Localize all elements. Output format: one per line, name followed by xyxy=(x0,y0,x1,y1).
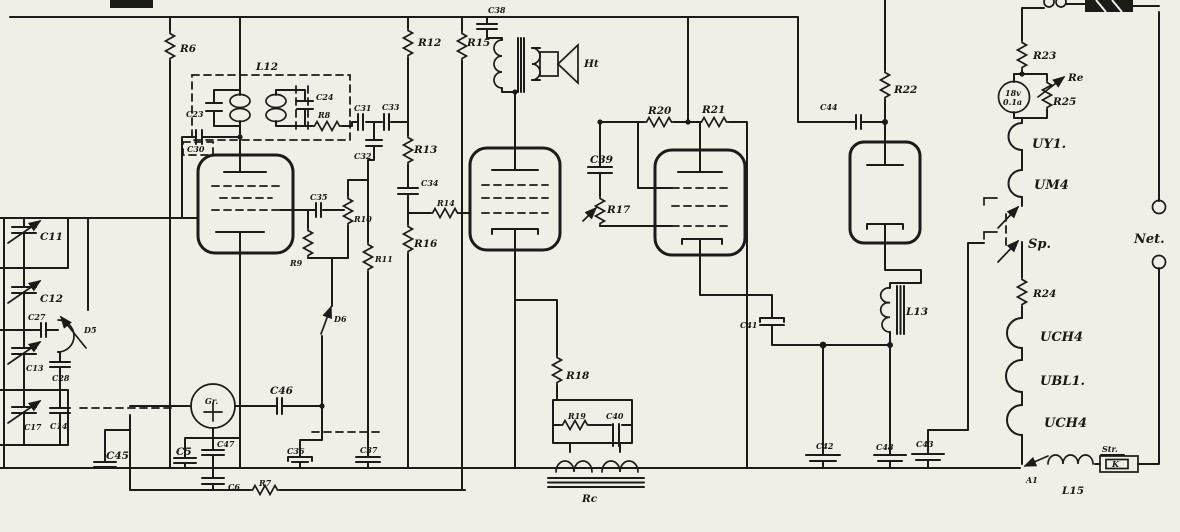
cut-off-element-top-left xyxy=(110,0,153,8)
label-c39: C39 xyxy=(590,154,614,166)
resistor-r21 xyxy=(699,118,729,127)
label-r6: R6 xyxy=(179,43,197,55)
mains-terminal-bottom xyxy=(1153,256,1166,269)
resistor-r16 xyxy=(404,224,413,254)
rc-transformer-winding-2 xyxy=(602,461,638,472)
tube-1-electrodes xyxy=(216,172,266,232)
label-r22: R22 xyxy=(893,84,917,96)
junction-dot xyxy=(237,134,242,139)
label-c33: C33 xyxy=(382,102,400,112)
mains-terminal-top xyxy=(1153,201,1166,214)
sp-switch-arrow-2 xyxy=(998,241,1018,262)
label-gr: Gr. xyxy=(205,396,218,406)
resistor-r20 xyxy=(644,118,674,127)
r17-wiper-arrow xyxy=(583,208,596,221)
label-tube-uch4-b: UCH4 xyxy=(1044,416,1087,431)
label-c31: C31 xyxy=(354,103,372,113)
l12-coil2-loop xyxy=(266,109,286,122)
label-r7: R7 xyxy=(258,478,272,488)
label-fuse-k: K xyxy=(1111,459,1120,469)
label-tube-uy1: UY1. xyxy=(1032,137,1066,152)
resistor-r6 xyxy=(166,31,175,61)
label-c47: C47 xyxy=(217,439,235,449)
l12-coil1-loop xyxy=(230,109,250,122)
label-r18: R18 xyxy=(565,370,590,382)
l12-coil2-loop xyxy=(266,95,286,108)
resistor-r14 xyxy=(430,209,460,218)
switch-d6-arrow xyxy=(321,307,331,334)
heater-chain xyxy=(1006,123,1022,435)
choke-l13 xyxy=(881,288,890,332)
label-c45: C45 xyxy=(106,450,129,462)
label-net: Net. xyxy=(1133,232,1165,247)
label-r24: R24 xyxy=(1032,288,1056,300)
tubes xyxy=(198,142,920,255)
heater-uch4-b xyxy=(1007,405,1022,435)
label-c24: C24 xyxy=(316,92,334,102)
resistor-r22 xyxy=(881,70,890,100)
label-r13: R13 xyxy=(413,144,437,156)
schematic-canvas: R6 L12 C23 C24 R8 C30 C31 C33 C32 R12 R1… xyxy=(0,0,1180,532)
resistor-r24 xyxy=(1018,277,1027,307)
resistor-r8 xyxy=(312,122,342,131)
label-c5: C5 xyxy=(176,446,192,458)
label-r21: R21 xyxy=(701,104,725,116)
label-l15: L15 xyxy=(1061,485,1084,497)
label-l12: L12 xyxy=(255,61,278,73)
junction-dot xyxy=(820,342,827,349)
resistor-r18 xyxy=(553,355,562,385)
label-c36: C36 xyxy=(287,446,305,456)
sp-switch-arrow-1 xyxy=(998,207,1018,228)
label-r14: R14 xyxy=(436,198,455,208)
tube-4-electrodes xyxy=(867,165,903,229)
capacitors xyxy=(12,24,944,484)
label-c12: C12 xyxy=(40,293,63,305)
label-r25: R25 xyxy=(1052,96,1076,108)
labels: R6 L12 C23 C24 R8 C30 C31 C33 C32 R12 R1… xyxy=(24,5,1165,505)
sp-switch-contacts xyxy=(984,198,997,239)
resistor-r15 xyxy=(458,31,467,61)
label-c32: C32 xyxy=(354,151,372,161)
junction-dot xyxy=(882,119,888,125)
label-c38: C38 xyxy=(488,5,506,15)
label-rc: Rc xyxy=(581,493,598,505)
heater-uch4-a xyxy=(1007,318,1022,348)
tube-2-electrodes xyxy=(492,148,538,234)
label-re: Re xyxy=(1067,72,1084,84)
resistor-r13 xyxy=(404,135,413,165)
output-transformer-secondary xyxy=(532,48,540,80)
cut-coil-loop xyxy=(1044,0,1054,7)
label-c34: C34 xyxy=(421,178,439,188)
junction-dot xyxy=(597,119,602,124)
label-c23: C23 xyxy=(186,109,204,119)
junction-dot xyxy=(512,89,517,94)
junction-dot xyxy=(685,119,690,124)
speaker-driver xyxy=(540,52,558,76)
label-tube-ubl1: UBL1. xyxy=(1040,374,1085,389)
heater-ubl1 xyxy=(1006,360,1022,392)
junction-dot xyxy=(887,342,893,348)
label-ht: Ht xyxy=(583,58,599,70)
junction-dot xyxy=(1019,71,1024,76)
label-r8: R8 xyxy=(317,110,331,120)
label-a1: A1 xyxy=(1025,475,1038,485)
label-c41: C41 xyxy=(740,320,758,330)
resistor-r9 xyxy=(304,228,313,258)
a1-switch-blade xyxy=(1025,456,1048,466)
label-c43: C43 xyxy=(916,439,934,449)
tube-1-envelope xyxy=(198,155,293,253)
label-c44: C44 xyxy=(820,102,838,112)
label-r20: R20 xyxy=(647,105,672,117)
cut-off-element-top-right xyxy=(1085,0,1133,12)
resistor-r23 xyxy=(1018,40,1027,70)
label-sp-switch: Sp. xyxy=(1028,237,1051,252)
label-tube-uch4-a: UCH4 xyxy=(1040,330,1083,345)
label-r10: R10 xyxy=(353,214,372,224)
label-c14: C14 xyxy=(50,421,68,431)
label-c13: C13 xyxy=(26,363,44,373)
speaker-cone-icon xyxy=(558,45,578,83)
label-lamp-amps: 0.1a xyxy=(1003,97,1022,107)
label-d6: D6 xyxy=(333,314,347,324)
resistor-r11 xyxy=(364,242,373,272)
heater-um4 xyxy=(1009,170,1023,197)
label-c48: C48 xyxy=(876,442,894,452)
label-c37: C37 xyxy=(360,445,378,455)
label-c42: C42 xyxy=(816,441,834,451)
label-r19: R19 xyxy=(567,411,586,421)
label-tube-um4: UM4 xyxy=(1034,178,1069,193)
label-c17: C17 xyxy=(24,422,42,432)
label-str: Str. xyxy=(1102,444,1118,454)
label-r23: R23 xyxy=(1032,50,1056,62)
label-r15: R15 xyxy=(466,37,490,49)
label-c30: C30 xyxy=(187,144,205,154)
label-c27: C27 xyxy=(28,312,46,322)
junction-dot xyxy=(319,403,324,408)
resistor-r25 xyxy=(1043,80,1052,110)
label-r9: R9 xyxy=(289,258,303,268)
label-c35: C35 xyxy=(310,192,328,202)
resistor-r10 xyxy=(344,196,353,226)
label-d5: D5 xyxy=(83,325,97,335)
schematic-page: R6 L12 C23 C24 R8 C30 C31 C33 C32 R12 R1… xyxy=(0,0,1180,532)
label-r16: R16 xyxy=(413,238,438,250)
label-r11: R11 xyxy=(374,254,393,264)
label-c46: C46 xyxy=(270,385,294,397)
label-c40: C40 xyxy=(606,411,624,421)
coil-l15 xyxy=(1048,455,1093,464)
cut-coil-loop xyxy=(1056,0,1066,7)
output-transformer-primary xyxy=(494,40,502,88)
resistor-r19 xyxy=(560,421,590,430)
rc-transformer-winding-1 xyxy=(556,461,592,472)
switch-d5-arc xyxy=(58,320,74,352)
label-c28: C28 xyxy=(52,373,70,383)
resistor-r12 xyxy=(404,28,413,58)
label-l13: L13 xyxy=(905,306,928,318)
label-c6: C6 xyxy=(228,482,240,492)
label-c11: C11 xyxy=(40,231,63,243)
resistor-r17 xyxy=(596,196,605,226)
tube-3-electrodes xyxy=(678,172,722,244)
heater-uy1 xyxy=(1009,123,1023,150)
label-r12: R12 xyxy=(417,37,441,49)
label-r17: R17 xyxy=(606,204,631,216)
l12-coil1-loop xyxy=(230,95,250,108)
